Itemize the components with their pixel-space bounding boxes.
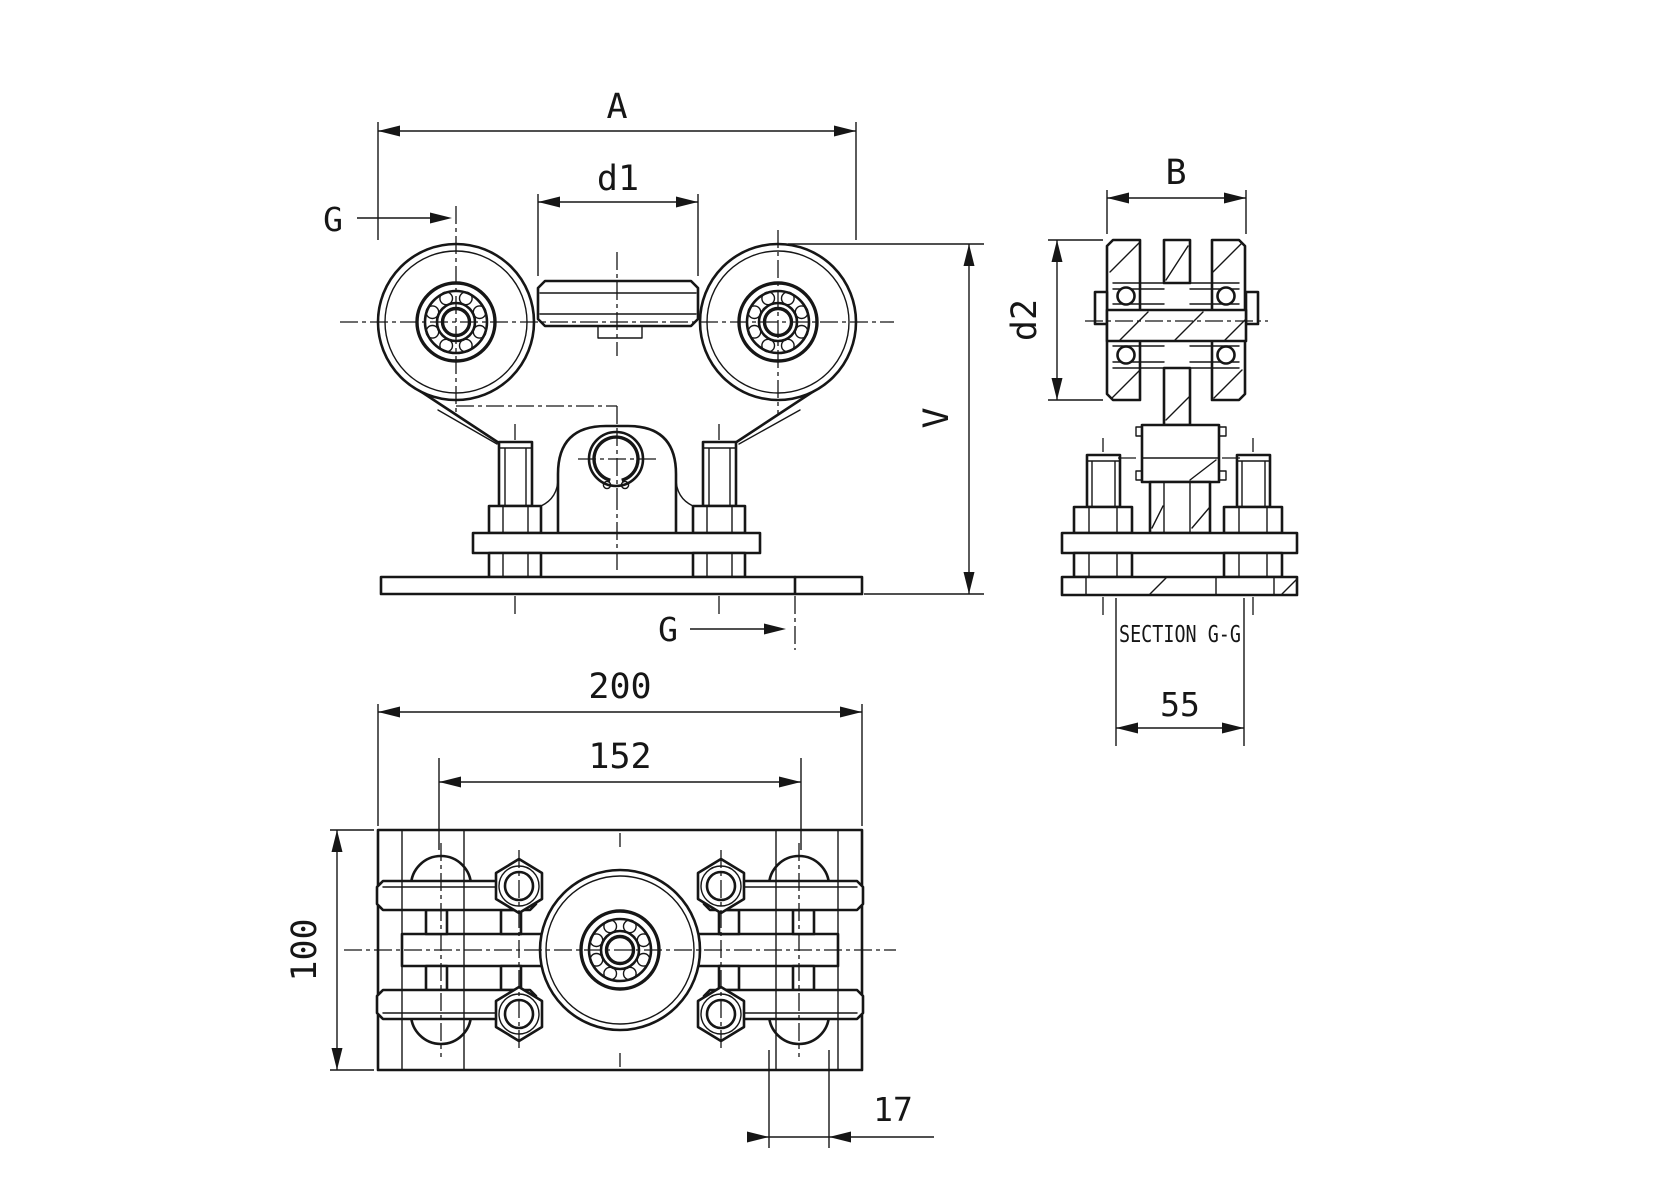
- right-lower-nut: [693, 553, 745, 577]
- dimension-b-label: B: [1165, 153, 1186, 193]
- technical-drawing-page: A d1 G G V: [0, 0, 1680, 1188]
- section-cut-g-bottom: G: [658, 610, 786, 649]
- gate-roller-trolley-drawing: A d1 G G V: [0, 0, 1680, 1188]
- dimension-152-value: 152: [588, 737, 651, 777]
- dimension-d1-label: d1: [597, 159, 639, 199]
- dimension-d2: d2: [1005, 240, 1103, 400]
- front-view: A d1 G G V: [323, 87, 984, 650]
- dimension-100-value: 100: [285, 918, 325, 981]
- base-plate: [381, 577, 862, 594]
- section-cut-g-top: G: [323, 200, 452, 239]
- section-g-g-view: B d2 SECTION G-G 55: [1005, 153, 1297, 746]
- dimension-17: 17: [747, 1050, 934, 1148]
- dimension-200-value: 200: [588, 667, 651, 707]
- shaft-lower: [1150, 482, 1210, 533]
- right-side-plate-inner-edge: [739, 410, 800, 444]
- shaft-upper: [1164, 368, 1190, 425]
- right-bolt: [693, 442, 745, 533]
- plan-view: 200 152 100 17: [285, 667, 934, 1148]
- section-base-plate: [1062, 577, 1297, 595]
- dimension-b: B: [1107, 153, 1246, 234]
- dimension-55: SECTION G-G 55: [1116, 598, 1244, 746]
- dimension-d2-label: d2: [1005, 299, 1045, 341]
- dimension-a-label: A: [606, 87, 627, 127]
- section-cut-g-top-label: G: [323, 200, 343, 239]
- dimension-d1: d1: [538, 159, 698, 276]
- left-side-plate-inner-edge: [438, 410, 497, 444]
- section-cut-g-bottom-label: G: [658, 610, 678, 649]
- rail-spacer-block: [538, 281, 698, 338]
- left-bolt: [489, 442, 541, 533]
- section-clamp-bar: [1062, 533, 1297, 553]
- dimension-55-value: 55: [1160, 685, 1200, 724]
- section-caption: SECTION G-G: [1119, 622, 1241, 648]
- left-lower-nut: [489, 553, 541, 577]
- section-right-bolt: [1224, 455, 1282, 533]
- dimension-17-value: 17: [873, 1090, 913, 1129]
- clamp-block: [1136, 425, 1226, 482]
- dimension-v-label: V: [917, 407, 957, 428]
- section-lower-nuts: [1074, 553, 1282, 577]
- section-left-bolt: [1074, 455, 1132, 533]
